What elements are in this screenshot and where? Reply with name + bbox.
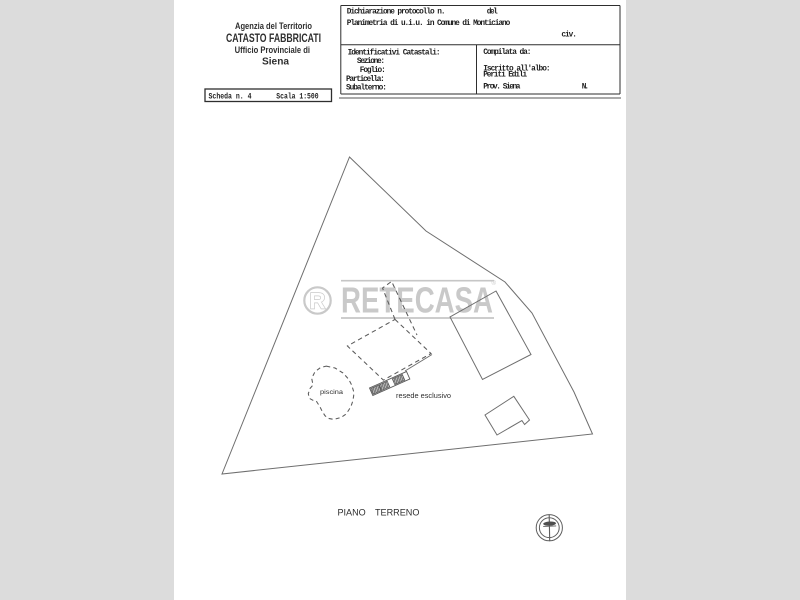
svg-text:resede esclusivo: resede esclusivo (396, 391, 451, 400)
svg-text:CATASTO FABBRICATI: CATASTO FABBRICATI (226, 31, 321, 45)
svg-text:PIANO: PIANO (338, 508, 366, 518)
svg-text:®: ® (492, 280, 497, 287)
svg-text:Particella:: Particella: (346, 76, 385, 84)
svg-text:Identificativi Catastali:: Identificativi Catastali: (348, 49, 441, 57)
svg-text:piscina: piscina (320, 389, 343, 396)
svg-text:Scala 1:500: Scala 1:500 (276, 93, 318, 102)
svg-text:del: del (487, 9, 498, 17)
svg-text:Subalterno:: Subalterno: (346, 85, 387, 93)
svg-text:TERRENO: TERRENO (375, 508, 419, 518)
svg-text:Siena: Siena (262, 56, 289, 68)
svg-text:RETECASA: RETECASA (341, 280, 493, 321)
svg-text:Scheda n. 4: Scheda n. 4 (209, 93, 252, 102)
svg-text:Dichiarazione protocollo n.: Dichiarazione protocollo n. (347, 9, 446, 17)
svg-text:Periti Edili: Periti Edili (483, 71, 527, 79)
svg-text:Sezione:: Sezione: (357, 58, 385, 66)
svg-text:Prov. Siena: Prov. Siena (483, 84, 521, 92)
svg-text:Foglio:: Foglio: (360, 67, 386, 75)
svg-text:N.: N. (582, 84, 589, 92)
svg-text:Planimetria di u.i.u. in Comun: Planimetria di u.i.u. in Comune di Monti… (347, 20, 511, 28)
svg-text:Ufficio Provinciale di: Ufficio Provinciale di (235, 45, 310, 56)
svg-text:civ.: civ. (561, 32, 577, 40)
svg-text:Compilata da:: Compilata da: (483, 49, 531, 57)
svg-text:R: R (310, 289, 326, 314)
